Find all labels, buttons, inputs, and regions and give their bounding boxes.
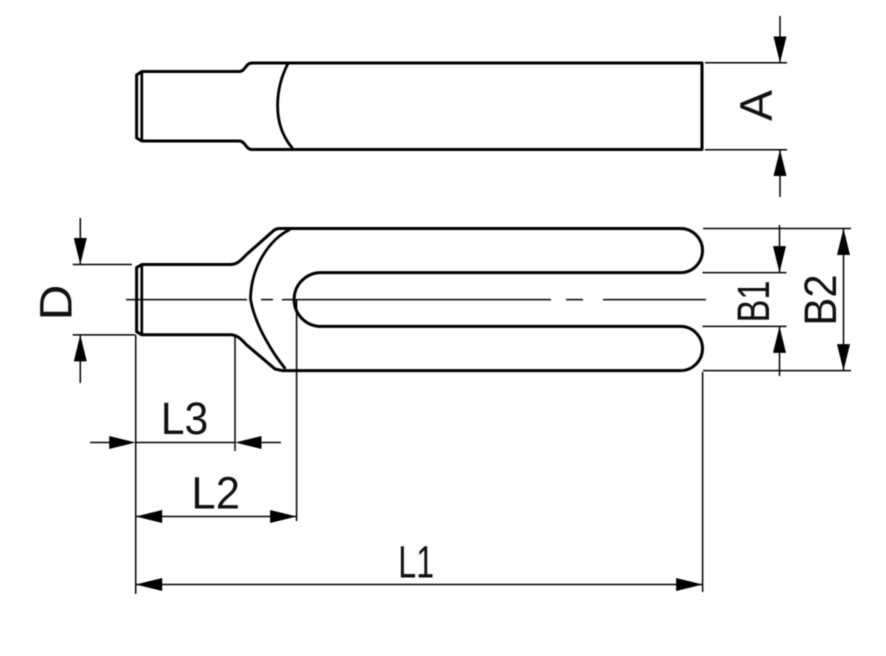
svg-text:D: D bbox=[32, 285, 82, 321]
svg-text:L3: L3 bbox=[161, 394, 209, 444]
svg-text:A: A bbox=[731, 89, 781, 120]
svg-text:B2: B2 bbox=[797, 274, 847, 325]
svg-text:L2: L2 bbox=[191, 469, 240, 519]
svg-text:B1: B1 bbox=[730, 281, 780, 323]
svg-text:L1: L1 bbox=[398, 538, 434, 587]
